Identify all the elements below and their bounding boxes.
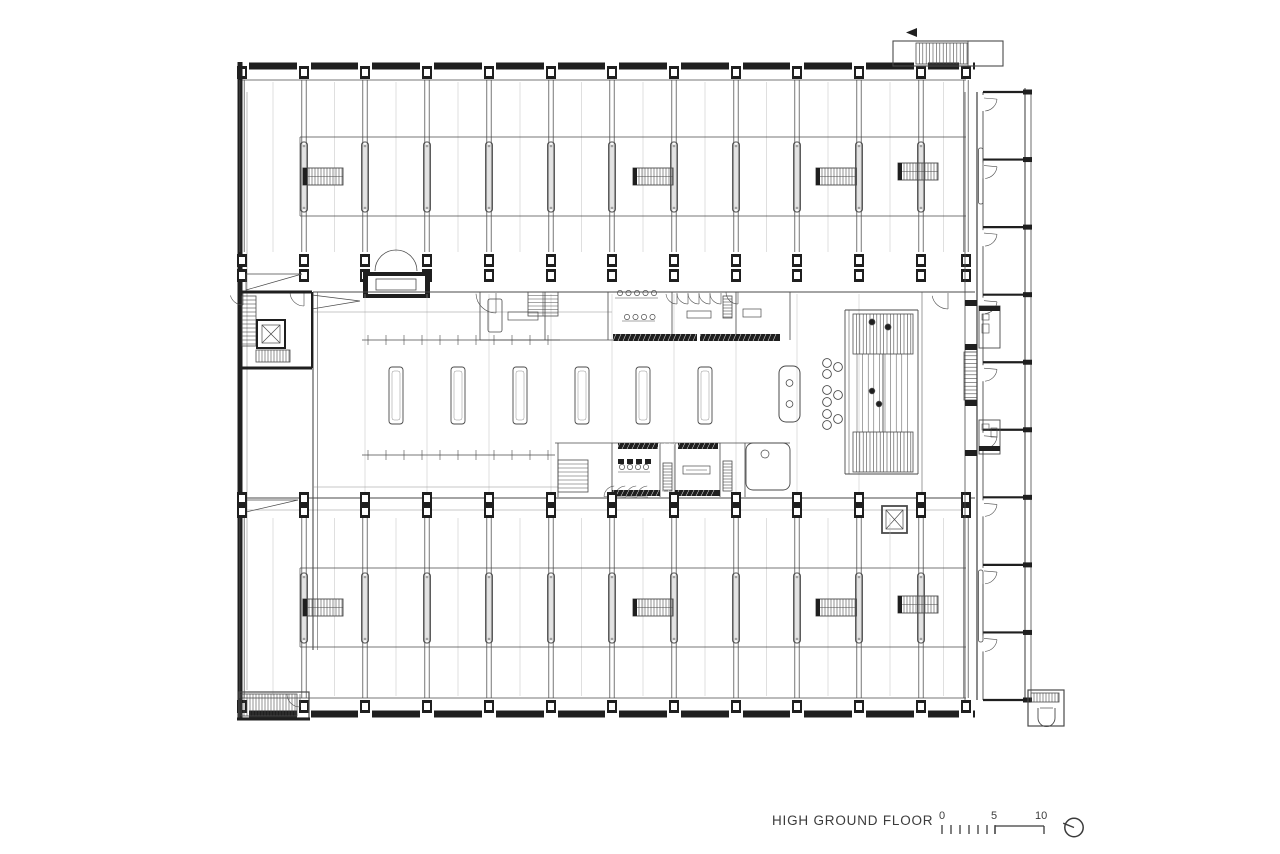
lower-core [555, 443, 790, 497]
page: HIGH GROUND FLOOR 0 5 10 [0, 0, 1280, 854]
scale-bar: 0 5 10 [936, 810, 1056, 838]
floor-plan-svg [0, 0, 1280, 854]
outer-walls [235, 61, 975, 719]
drawing-title: HIGH GROUND FLOOR [772, 813, 933, 828]
external-stair-top [893, 28, 1003, 66]
floor-plan-drawing [0, 0, 1280, 854]
scale-label-0: 0 [939, 810, 945, 822]
bottom-wing [237, 492, 971, 719]
scale-ticks [936, 823, 1056, 837]
upper-core [480, 290, 790, 341]
scale-label-5: 5 [991, 810, 997, 822]
right-wing [964, 88, 1064, 727]
left-core [240, 274, 312, 368]
scale-label-10: 10 [1035, 810, 1047, 822]
north-arrow-icon [1060, 815, 1086, 841]
top-wing [237, 80, 971, 298]
seating-area [779, 359, 842, 430]
